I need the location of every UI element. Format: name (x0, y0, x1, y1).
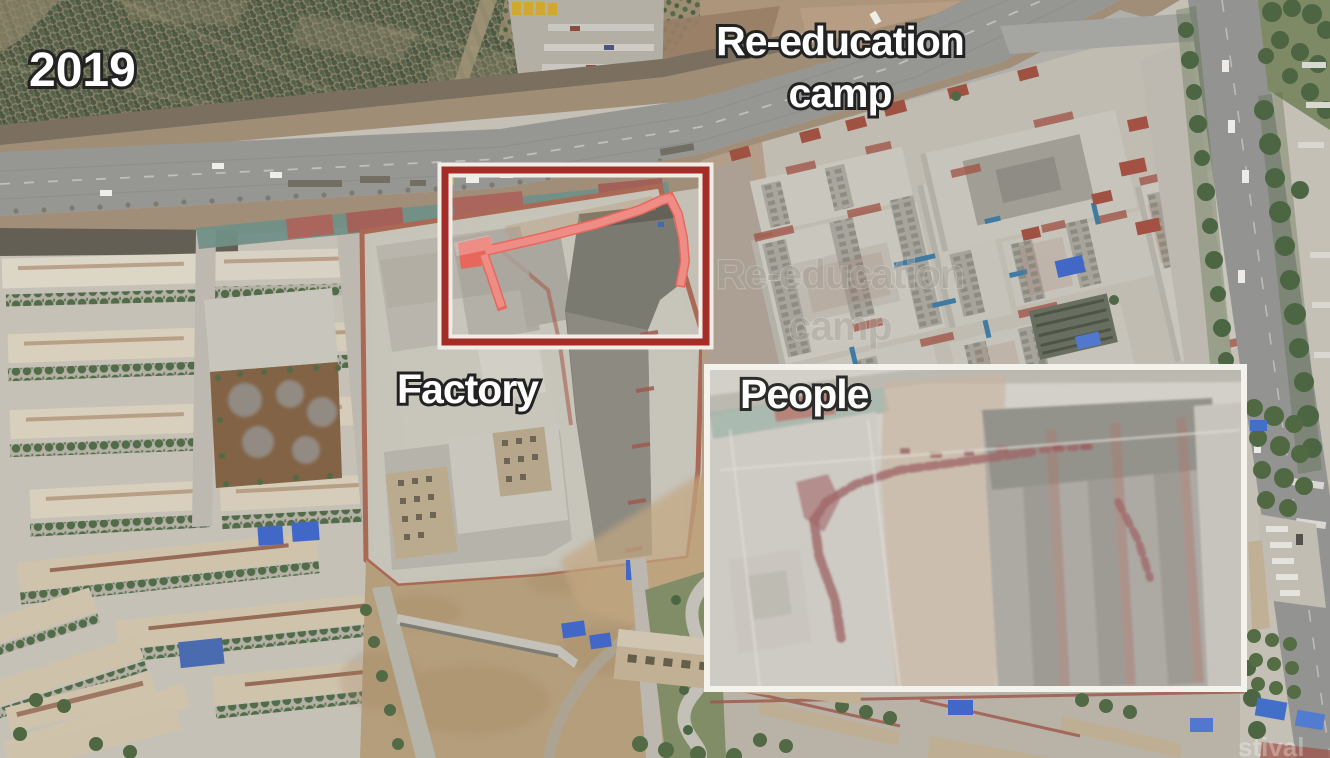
svg-text:camp: camp (788, 303, 891, 349)
svg-text:camp: camp (788, 70, 891, 116)
svg-text:stival: stival (1238, 732, 1305, 758)
svg-text:Factory: Factory (397, 366, 539, 412)
svg-text:2019: 2019 (29, 44, 136, 97)
svg-text:Re-education: Re-education (716, 18, 964, 64)
svg-text:Re-education: Re-education (716, 251, 964, 297)
